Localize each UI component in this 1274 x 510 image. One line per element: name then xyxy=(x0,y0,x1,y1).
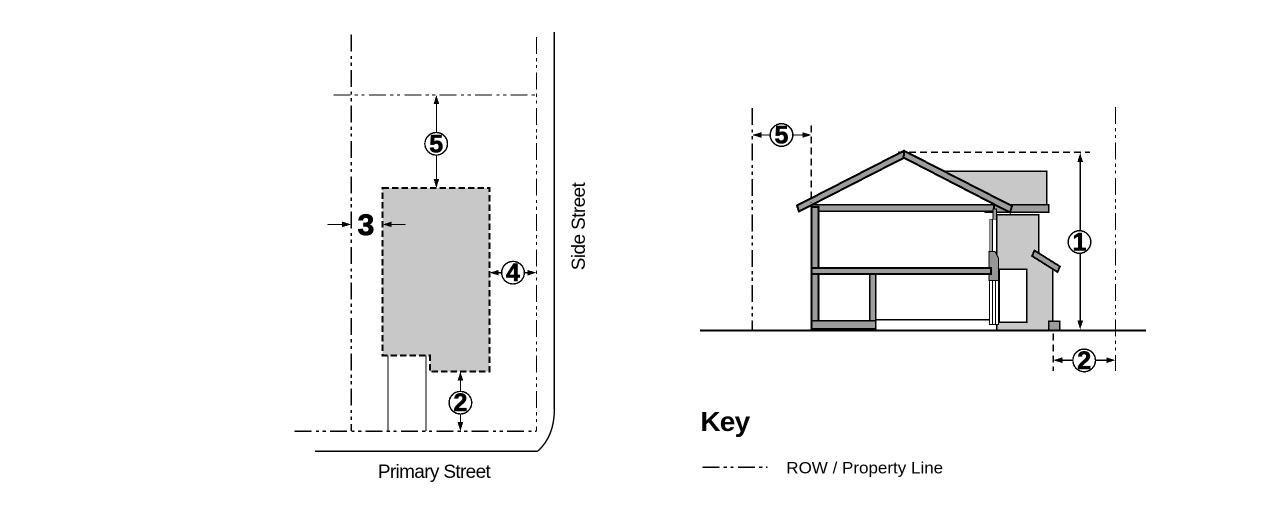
svg-text:2: 2 xyxy=(1077,347,1091,375)
svg-text:3: 3 xyxy=(358,209,375,242)
svg-text:Primary Street: Primary Street xyxy=(378,462,492,483)
svg-text:Key: Key xyxy=(700,406,750,437)
svg-text:1: 1 xyxy=(1073,229,1087,257)
svg-text:Side Street: Side Street xyxy=(569,181,590,270)
svg-text:ROW / Property Line: ROW / Property Line xyxy=(786,459,943,478)
svg-text:5: 5 xyxy=(775,122,789,150)
svg-text:4: 4 xyxy=(506,259,520,287)
svg-text:5: 5 xyxy=(429,130,443,158)
svg-text:2: 2 xyxy=(453,389,467,417)
